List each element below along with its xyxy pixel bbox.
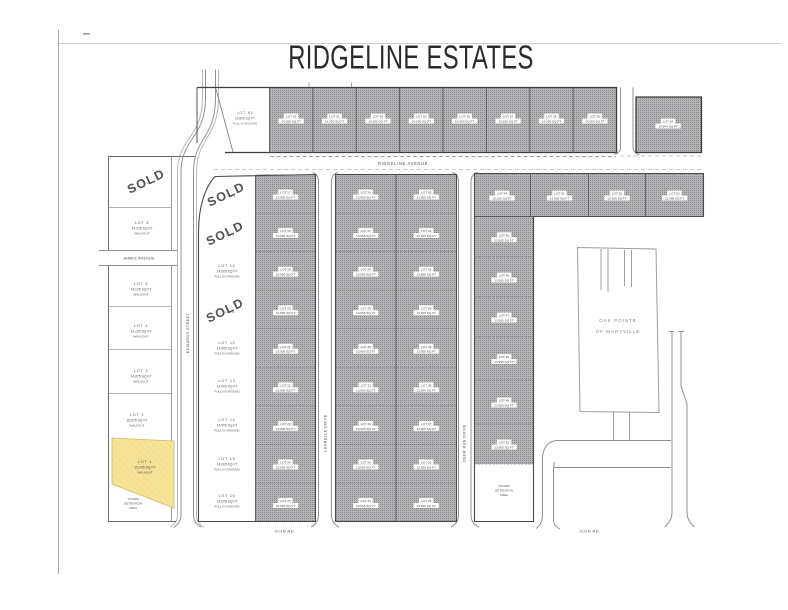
svg-text:13,905 SQ FT: 13,905 SQ FT bbox=[356, 273, 376, 277]
svg-text:13,905 SQ FT: 13,905 SQ FT bbox=[416, 465, 436, 469]
svg-text:14,806 SQ FT: 14,806 SQ FT bbox=[235, 116, 255, 120]
svg-text:14,005 SQ FT: 14,005 SQ FT bbox=[217, 384, 238, 388]
svg-text:13,905 SQ FT: 13,905 SQ FT bbox=[276, 311, 296, 315]
svg-text:LOT 54: LOT 54 bbox=[663, 120, 674, 124]
svg-text:13,905 SQ FT: 13,905 SQ FT bbox=[416, 504, 436, 508]
svg-text:LOT 12: LOT 12 bbox=[218, 341, 235, 345]
svg-text:13,905 SQ FT: 13,905 SQ FT bbox=[276, 388, 296, 392]
svg-text:LOT 55: LOT 55 bbox=[590, 115, 601, 119]
svg-text:14,544 SQ FT: 14,544 SQ FT bbox=[658, 125, 678, 129]
svg-text:WALKOUT: WALKOUT bbox=[133, 335, 148, 339]
svg-text:14,250 SQ FT: 14,250 SQ FT bbox=[498, 120, 518, 124]
svg-text:STORM: STORM bbox=[127, 497, 139, 501]
svg-text:LOT 14: LOT 14 bbox=[218, 418, 235, 422]
svg-text:14,875 SQ FT: 14,875 SQ FT bbox=[130, 374, 151, 378]
svg-text:LOT 5: LOT 5 bbox=[134, 282, 148, 286]
svg-text:LOT 1: LOT 1 bbox=[138, 460, 152, 464]
svg-text:LOT 2: LOT 2 bbox=[130, 413, 144, 417]
svg-text:LOT 59: LOT 59 bbox=[416, 115, 427, 119]
svg-text:13,905 SQ FT: 13,905 SQ FT bbox=[494, 404, 514, 408]
svg-text:LOT 56: LOT 56 bbox=[546, 115, 557, 119]
svg-text:LOT 10: LOT 10 bbox=[218, 264, 235, 268]
svg-text:14,005 SQ FT: 14,005 SQ FT bbox=[217, 269, 238, 273]
svg-text:LOT 47: LOT 47 bbox=[499, 314, 510, 318]
svg-text:FULL IN GROUND: FULL IN GROUND bbox=[214, 390, 240, 394]
svg-text:LOT 26: LOT 26 bbox=[361, 191, 372, 195]
svg-text:LOT 37: LOT 37 bbox=[421, 422, 432, 426]
svg-text:14,125 SQ FT: 14,125 SQ FT bbox=[130, 287, 151, 291]
svg-text:LOT 23: LOT 23 bbox=[280, 422, 291, 426]
svg-text:13,935 SQ FT: 13,935 SQ FT bbox=[550, 197, 570, 201]
svg-text:WALKOUT: WALKOUT bbox=[133, 380, 148, 384]
svg-text:13,905 SQ FT: 13,905 SQ FT bbox=[416, 311, 436, 315]
svg-text:EDWARDS STREET: EDWARDS STREET bbox=[186, 312, 190, 353]
svg-text:DETENTION: DETENTION bbox=[495, 489, 513, 493]
svg-text:LOT 6: LOT 6 bbox=[135, 221, 149, 225]
svg-text:13,905 SQ FT: 13,905 SQ FT bbox=[276, 195, 296, 199]
svg-text:13,935 SQ FT: 13,935 SQ FT bbox=[607, 197, 627, 201]
svg-text:14,005 SQ FT: 14,005 SQ FT bbox=[217, 423, 238, 427]
svg-text:ICON RD.: ICON RD. bbox=[579, 530, 600, 534]
svg-text:LOT 60: LOT 60 bbox=[373, 115, 384, 119]
svg-text:LOT 36: LOT 36 bbox=[421, 461, 432, 465]
svg-text:LOT 62: LOT 62 bbox=[286, 115, 297, 119]
svg-text:LOT 28: LOT 28 bbox=[361, 268, 372, 272]
svg-text:13,905 SQ FT: 13,905 SQ FT bbox=[494, 279, 514, 283]
svg-text:13,905 SQ FT: 13,905 SQ FT bbox=[494, 360, 514, 364]
svg-text:LOT 44: LOT 44 bbox=[497, 192, 508, 196]
svg-text:LOT 40: LOT 40 bbox=[421, 306, 432, 310]
svg-text:15,045 SQ FT: 15,045 SQ FT bbox=[134, 465, 155, 469]
svg-text:13,905 SQ FT: 13,905 SQ FT bbox=[356, 350, 376, 354]
svg-text:STORM: STORM bbox=[498, 484, 510, 488]
svg-text:13,905 SQ FT: 13,905 SQ FT bbox=[416, 350, 436, 354]
svg-text:LOT 25: LOT 25 bbox=[280, 499, 291, 503]
svg-text:LOT 45: LOT 45 bbox=[499, 233, 510, 237]
svg-text:WALKOUT: WALKOUT bbox=[134, 232, 149, 236]
svg-text:LOT 19: LOT 19 bbox=[280, 268, 291, 272]
svg-text:RIDGELINE ESTATES: RIDGELINE ESTATES bbox=[288, 40, 534, 77]
svg-text:13,905 SQ FT: 13,905 SQ FT bbox=[356, 427, 376, 431]
svg-text:14,250 SQ FT: 14,250 SQ FT bbox=[412, 120, 432, 124]
svg-text:WALKOUT: WALKOUT bbox=[129, 424, 144, 428]
svg-text:14,250 SQ FT: 14,250 SQ FT bbox=[281, 120, 301, 124]
svg-text:13,905 SQ FT: 13,905 SQ FT bbox=[356, 388, 376, 392]
svg-text:13,998 SQ FT: 13,998 SQ FT bbox=[665, 197, 685, 201]
svg-text:13,905 SQ FT: 13,905 SQ FT bbox=[416, 273, 436, 277]
svg-text:LOT 42: LOT 42 bbox=[421, 229, 432, 233]
svg-text:LOT 38: LOT 38 bbox=[421, 383, 432, 387]
svg-text:13,905 SQ FT: 13,905 SQ FT bbox=[276, 273, 296, 277]
svg-text:LOT 22: LOT 22 bbox=[280, 383, 291, 387]
svg-text:OAK POINTE: OAK POINTE bbox=[599, 318, 637, 323]
svg-text:13,905 SQ FT: 13,905 SQ FT bbox=[416, 195, 436, 199]
svg-text:LOT 58: LOT 58 bbox=[460, 115, 471, 119]
svg-text:LOT 21: LOT 21 bbox=[280, 345, 291, 349]
svg-text:LOT 63: LOT 63 bbox=[237, 111, 254, 115]
svg-text:JAMES AVENUE: JAMES AVENUE bbox=[123, 257, 155, 261]
svg-text:FULL IN GROUND: FULL IN GROUND bbox=[214, 275, 240, 279]
svg-text:14,250 SQ FT: 14,250 SQ FT bbox=[325, 120, 345, 124]
svg-text:13,905 SQ FT: 13,905 SQ FT bbox=[416, 388, 436, 392]
svg-text:LOT 29: LOT 29 bbox=[361, 306, 372, 310]
svg-text:LOT 52: LOT 52 bbox=[612, 192, 623, 196]
svg-text:OF MARYVILLE: OF MARYVILLE bbox=[596, 329, 641, 334]
svg-text:13,905 SQ FT: 13,905 SQ FT bbox=[494, 446, 514, 450]
svg-text:LOT 17: LOT 17 bbox=[280, 191, 291, 195]
svg-text:13,905 SQ FT: 13,905 SQ FT bbox=[276, 350, 296, 354]
svg-text:LOT 57: LOT 57 bbox=[503, 115, 514, 119]
svg-text:13,905 SQ FT: 13,905 SQ FT bbox=[494, 238, 514, 242]
svg-text:13,905 SQ FT: 13,905 SQ FT bbox=[356, 234, 376, 238]
svg-text:FULL IN GROUND: FULL IN GROUND bbox=[214, 468, 240, 472]
svg-text:14,250 SQ FT: 14,250 SQ FT bbox=[368, 120, 388, 124]
svg-text:LOT 41: LOT 41 bbox=[421, 268, 432, 272]
svg-text:14,125 SQ FT: 14,125 SQ FT bbox=[130, 329, 151, 333]
svg-text:13,905 SQ FT: 13,905 SQ FT bbox=[276, 234, 296, 238]
svg-text:13,905 SQ FT: 13,905 SQ FT bbox=[276, 504, 296, 508]
svg-text:LOT 34: LOT 34 bbox=[361, 499, 372, 503]
svg-text:LOT 35: LOT 35 bbox=[421, 499, 432, 503]
svg-text:14,250 SQ FT: 14,250 SQ FT bbox=[455, 120, 475, 124]
svg-text:LOT 24: LOT 24 bbox=[280, 461, 291, 465]
svg-text:13,905 SQ FT: 13,905 SQ FT bbox=[494, 319, 514, 323]
svg-text:13,905 SQ FT: 13,905 SQ FT bbox=[356, 311, 376, 315]
svg-text:14,005 SQ FT: 14,005 SQ FT bbox=[217, 462, 238, 466]
svg-text:DEER RUN DRIVE: DEER RUN DRIVE bbox=[463, 424, 467, 462]
svg-text:LOT 16: LOT 16 bbox=[218, 494, 235, 498]
svg-text:LOT 18: LOT 18 bbox=[280, 229, 291, 233]
svg-text:13,905 SQ FT: 13,905 SQ FT bbox=[276, 465, 296, 469]
svg-text:15,975 SQ FT: 15,975 SQ FT bbox=[126, 418, 147, 422]
svg-text:LOT 32: LOT 32 bbox=[361, 422, 372, 426]
svg-text:DETENTION: DETENTION bbox=[124, 502, 142, 506]
svg-text:LOT 4: LOT 4 bbox=[134, 324, 148, 328]
svg-text:RIDGELINE AVENUE: RIDGELINE AVENUE bbox=[378, 161, 428, 166]
svg-text:AREA: AREA bbox=[500, 493, 509, 497]
svg-text:14,250 SQ FT: 14,250 SQ FT bbox=[542, 120, 562, 124]
svg-text:LOT 46: LOT 46 bbox=[499, 274, 510, 278]
svg-text:LOT 49: LOT 49 bbox=[499, 399, 510, 403]
svg-text:13,905 SQ FT: 13,905 SQ FT bbox=[276, 427, 296, 431]
svg-text:LOT 51: LOT 51 bbox=[554, 192, 565, 196]
svg-text:14,005 SQ FT: 14,005 SQ FT bbox=[217, 346, 238, 350]
svg-text:13,905 SQ FT: 13,905 SQ FT bbox=[356, 465, 376, 469]
svg-text:LOT 20: LOT 20 bbox=[280, 306, 291, 310]
svg-text:13,905 SQ FT: 13,905 SQ FT bbox=[416, 234, 436, 238]
svg-text:LOT 48: LOT 48 bbox=[499, 355, 510, 359]
svg-text:13,335 SQ FT: 13,335 SQ FT bbox=[492, 197, 512, 201]
svg-text:14,125 SQ FT: 14,125 SQ FT bbox=[131, 226, 152, 230]
svg-text:LOT 50: LOT 50 bbox=[499, 441, 510, 445]
svg-text:FULL IN GROUND: FULL IN GROUND bbox=[233, 122, 257, 126]
svg-text:LOT 61: LOT 61 bbox=[329, 115, 340, 119]
svg-text:LOT 3: LOT 3 bbox=[134, 369, 148, 373]
svg-text:LOT 33: LOT 33 bbox=[361, 461, 372, 465]
svg-text:ICON RD.: ICON RD. bbox=[274, 530, 295, 534]
svg-text:LOT 27: LOT 27 bbox=[361, 229, 372, 233]
svg-text:14,250 SQ FT: 14,250 SQ FT bbox=[585, 120, 605, 124]
svg-text:13,905 SQ FT: 13,905 SQ FT bbox=[356, 195, 376, 199]
svg-text:FULL IN GROUND: FULL IN GROUND bbox=[214, 429, 240, 433]
svg-text:WALKOUT: WALKOUT bbox=[137, 471, 152, 475]
svg-text:LOT 15: LOT 15 bbox=[218, 457, 235, 461]
svg-text:LOT 13: LOT 13 bbox=[218, 379, 235, 383]
svg-text:AREA: AREA bbox=[129, 506, 138, 510]
svg-text:LAURELLE DRIVE: LAURELLE DRIVE bbox=[324, 414, 328, 451]
svg-text:LOT 39: LOT 39 bbox=[421, 345, 432, 349]
svg-text:14,005 SQ FT: 14,005 SQ FT bbox=[217, 499, 238, 503]
svg-text:FULL IN GROUND: FULL IN GROUND bbox=[214, 352, 240, 356]
svg-text:13,905 SQ FT: 13,905 SQ FT bbox=[356, 504, 376, 508]
svg-text:WALKOUT: WALKOUT bbox=[133, 293, 148, 297]
svg-text:LOT 31: LOT 31 bbox=[361, 383, 372, 387]
svg-text:FULL IN GROUND: FULL IN GROUND bbox=[214, 505, 240, 509]
svg-text:LOT 43: LOT 43 bbox=[421, 191, 432, 195]
svg-text:LOT 53: LOT 53 bbox=[669, 192, 680, 196]
svg-text:LOT 30: LOT 30 bbox=[361, 345, 372, 349]
svg-text:13,905 SQ FT: 13,905 SQ FT bbox=[416, 427, 436, 431]
